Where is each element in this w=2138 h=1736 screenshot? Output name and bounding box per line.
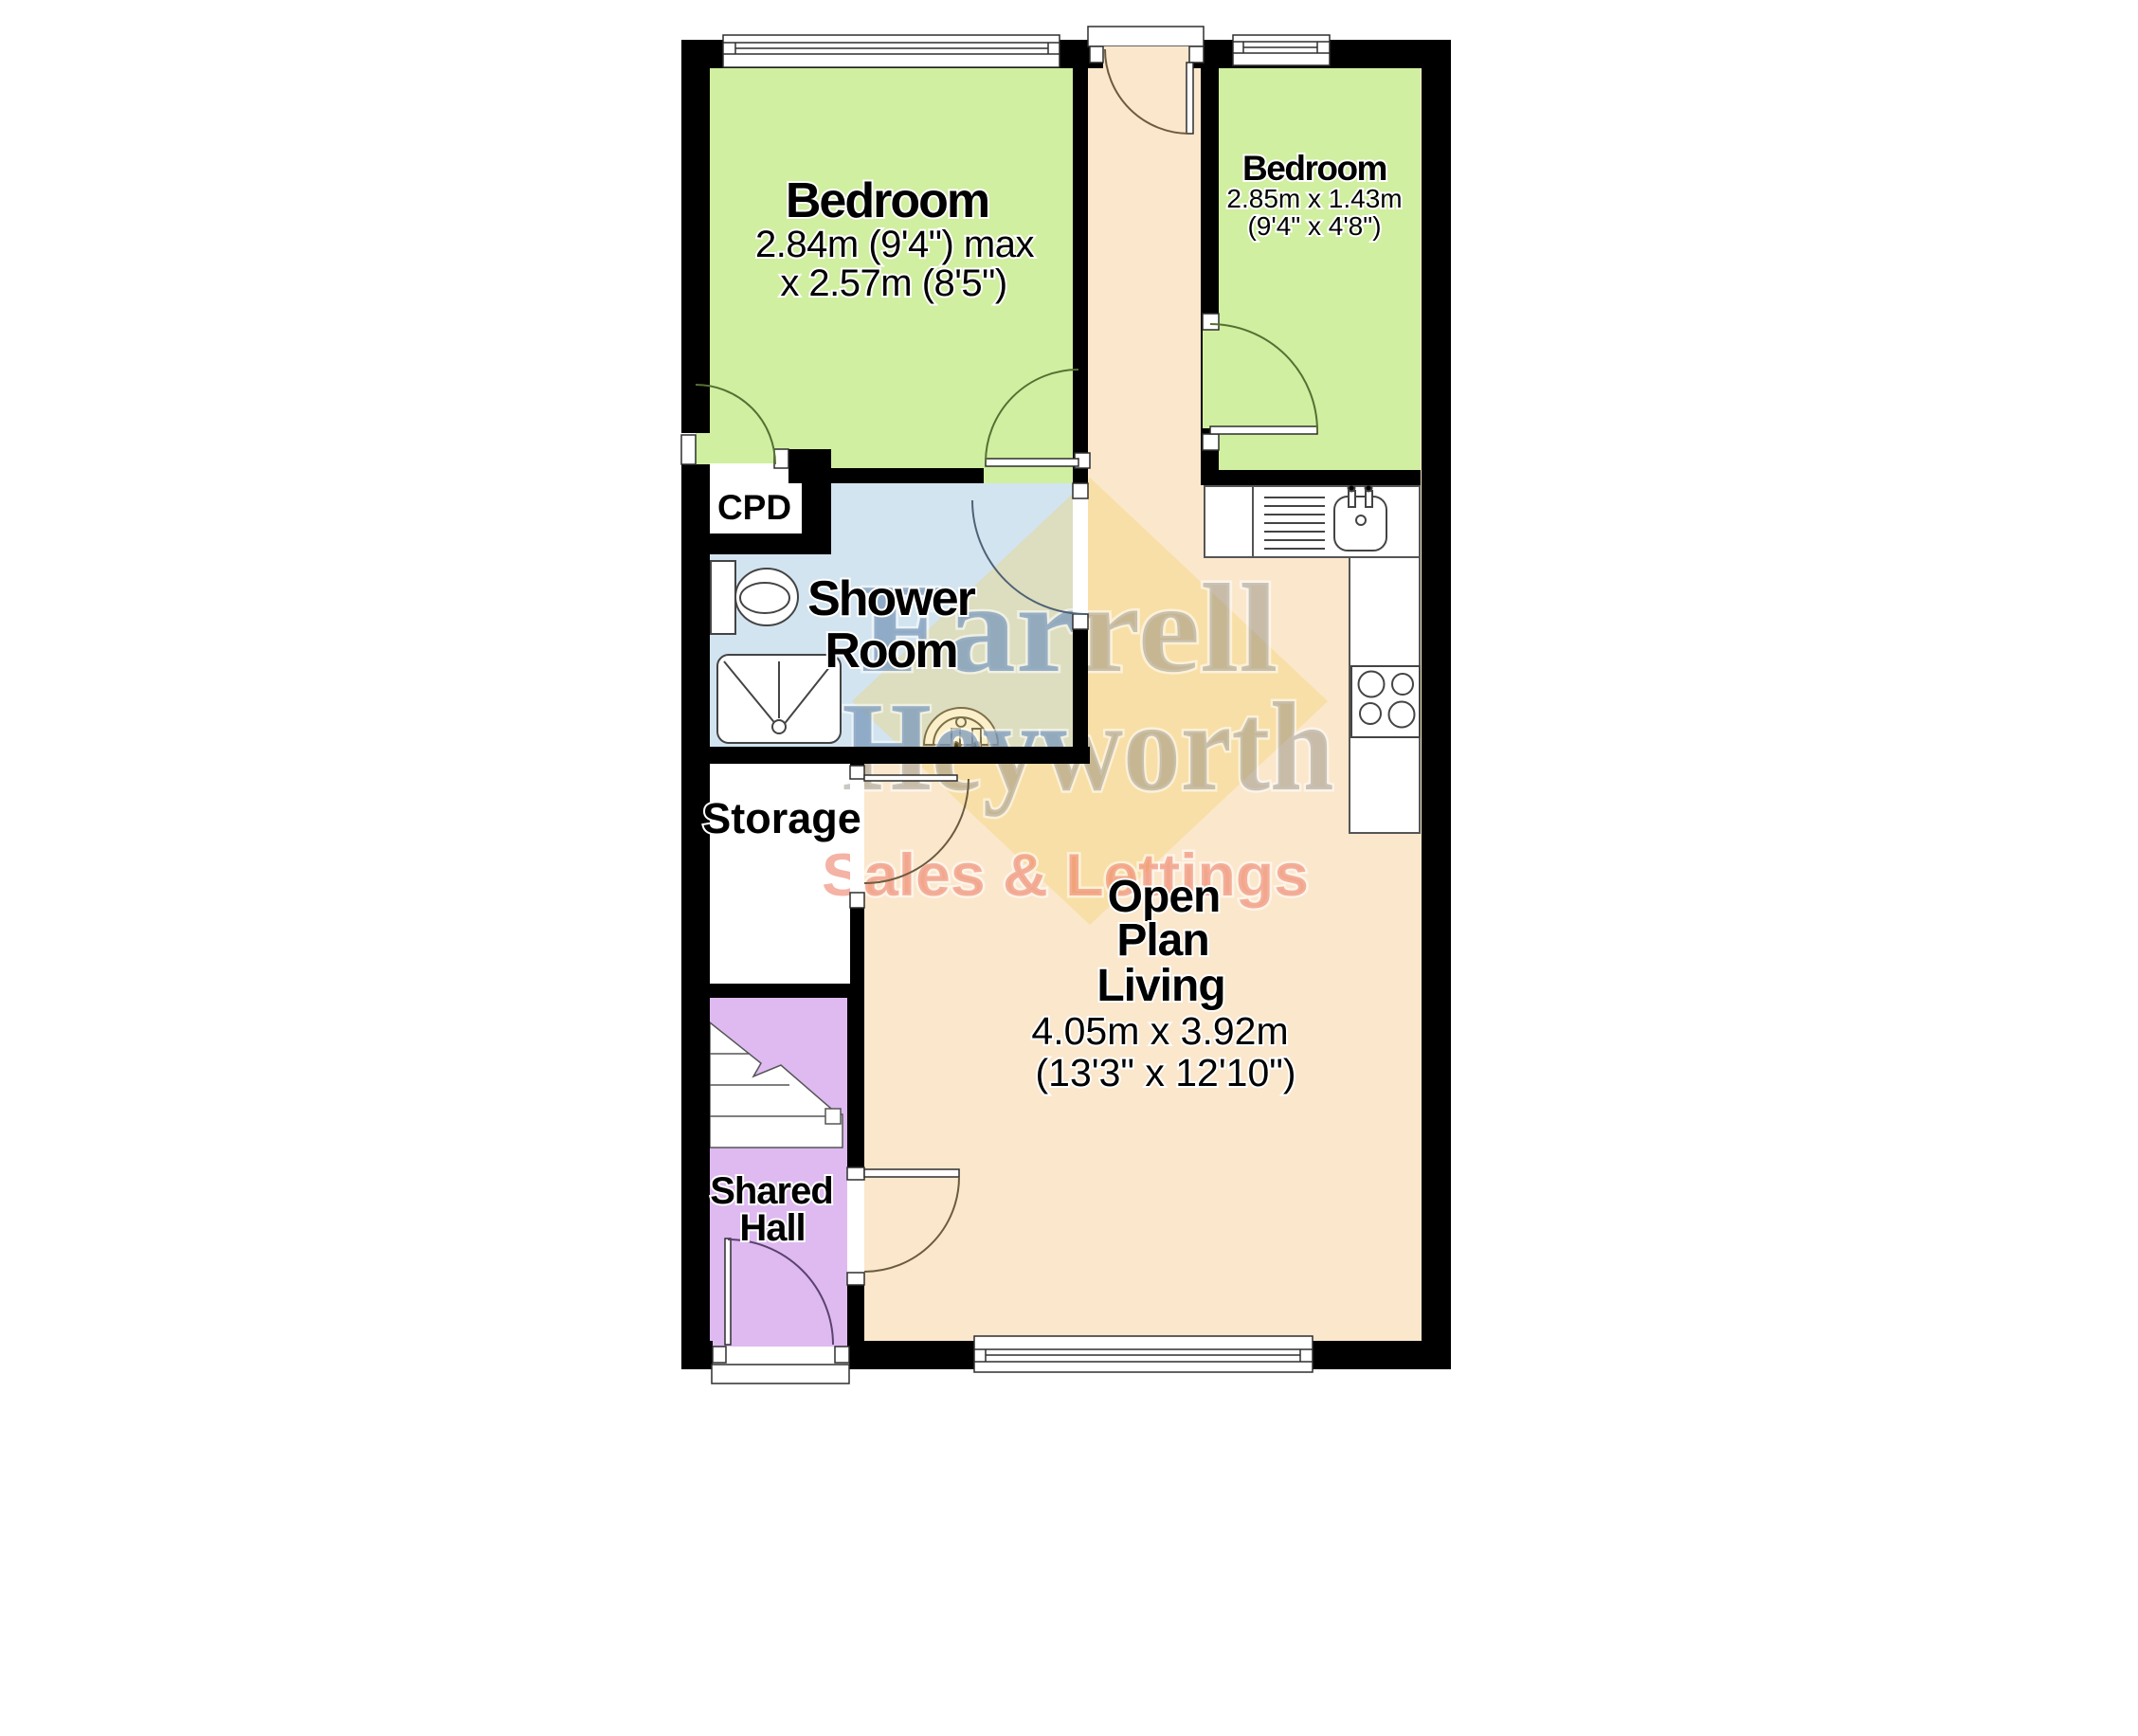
svg-text:2.84m (9'4") max: 2.84m (9'4") max — [755, 224, 1034, 265]
svg-text:(9'4" x 4'8"): (9'4" x 4'8") — [1247, 211, 1381, 241]
svg-text:Room: Room — [824, 624, 956, 678]
svg-text:Living: Living — [1096, 961, 1224, 1011]
svg-text:Sales & Lettings: Sales & Lettings — [822, 842, 1309, 909]
svg-text:4.05m x 3.92m: 4.05m x 3.92m — [1031, 1009, 1288, 1053]
svg-text:(13'3" x 12'10"): (13'3" x 12'10") — [1036, 1051, 1296, 1094]
svg-text:Plan: Plan — [1116, 915, 1208, 966]
svg-text:x 2.57m (8'5"): x 2.57m (8'5") — [780, 262, 1006, 304]
svg-text:Shared: Shared — [710, 1170, 833, 1212]
svg-text:2.85m x 1.43m: 2.85m x 1.43m — [1226, 184, 1402, 213]
svg-text:Bedroom: Bedroom — [1242, 149, 1386, 188]
svg-text:Storage: Storage — [702, 794, 861, 842]
svg-text:Hall: Hall — [739, 1207, 805, 1249]
svg-text:CPD: CPD — [717, 488, 791, 527]
svg-text:Shower: Shower — [807, 571, 976, 626]
svg-text:Bedroom: Bedroom — [786, 173, 988, 228]
